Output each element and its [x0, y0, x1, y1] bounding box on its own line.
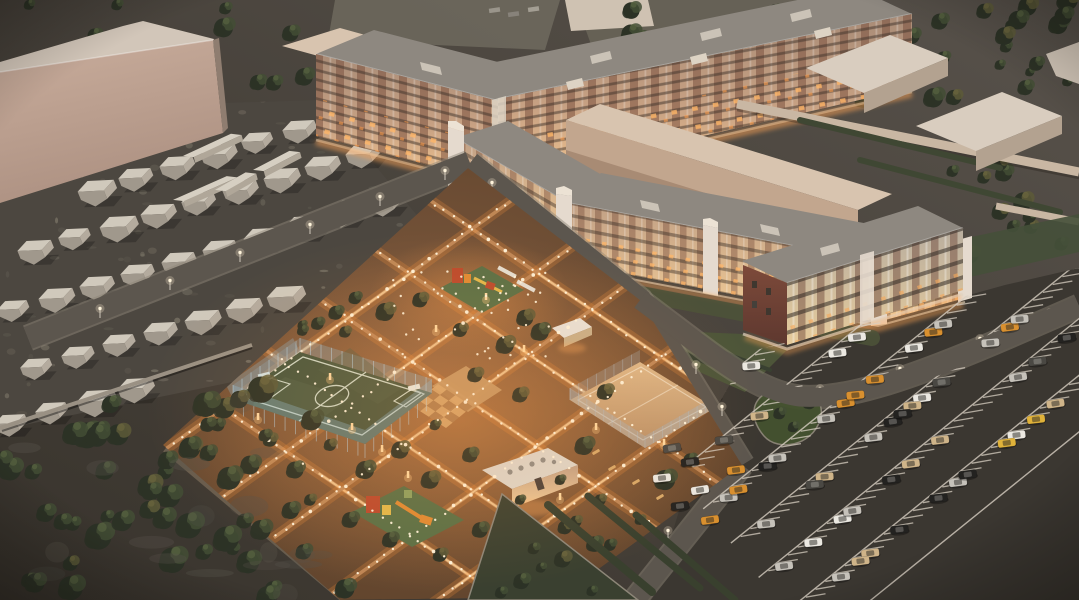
vignette [0, 0, 1079, 600]
scene-render [0, 0, 1079, 600]
render-stage [0, 0, 1079, 600]
